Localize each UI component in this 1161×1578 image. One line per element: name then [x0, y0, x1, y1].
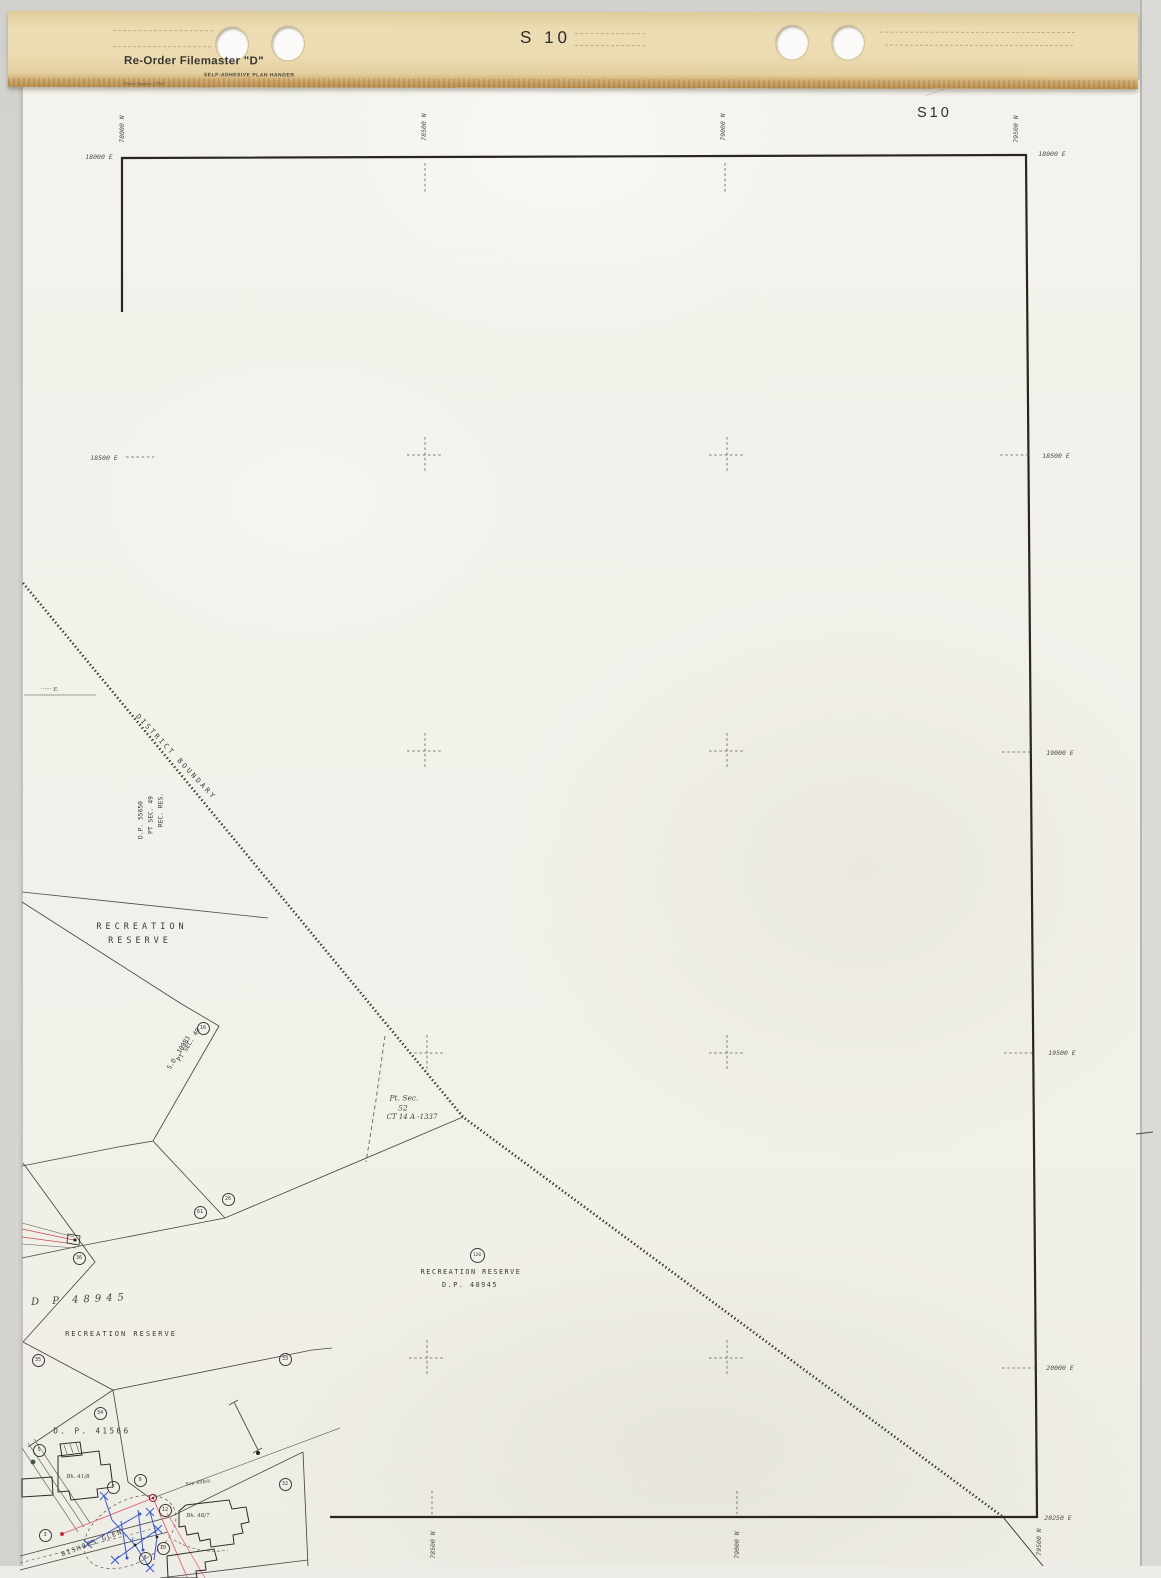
punch-hole [272, 26, 304, 60]
hanger-rule-line [113, 46, 211, 47]
hanger-product-subtitle: SELF-ADHESIVE PLAN HANGER [204, 72, 295, 78]
hanger-rule-line [885, 45, 1073, 46]
hanger-rule-line [880, 32, 1075, 33]
punch-hole [832, 26, 864, 60]
hanger-sheet-number: S 10 [520, 28, 571, 48]
hanger-product-name: Re-Order Filemaster "D" [124, 55, 264, 67]
hanger-rule-line [575, 33, 645, 34]
plan-hanger-strip: Re-Order Filemaster "D" SELF-ADHESIVE PL… [8, 11, 1138, 89]
hanger-rule-line [113, 30, 213, 31]
photo-background: 78000 N78500 N79000 N79500 N18000 E18500… [0, 0, 1161, 1578]
backdrop-right-band [1140, 0, 1161, 1578]
hanger-patent-number: Patent Number 13784 [124, 81, 164, 86]
backdrop-bottom-band [0, 1566, 1161, 1578]
sheet-number-label: S10 [917, 105, 952, 121]
punch-hole [776, 25, 808, 59]
hanger-rule-line [575, 45, 645, 46]
plan-sheet [22, 80, 1142, 1566]
